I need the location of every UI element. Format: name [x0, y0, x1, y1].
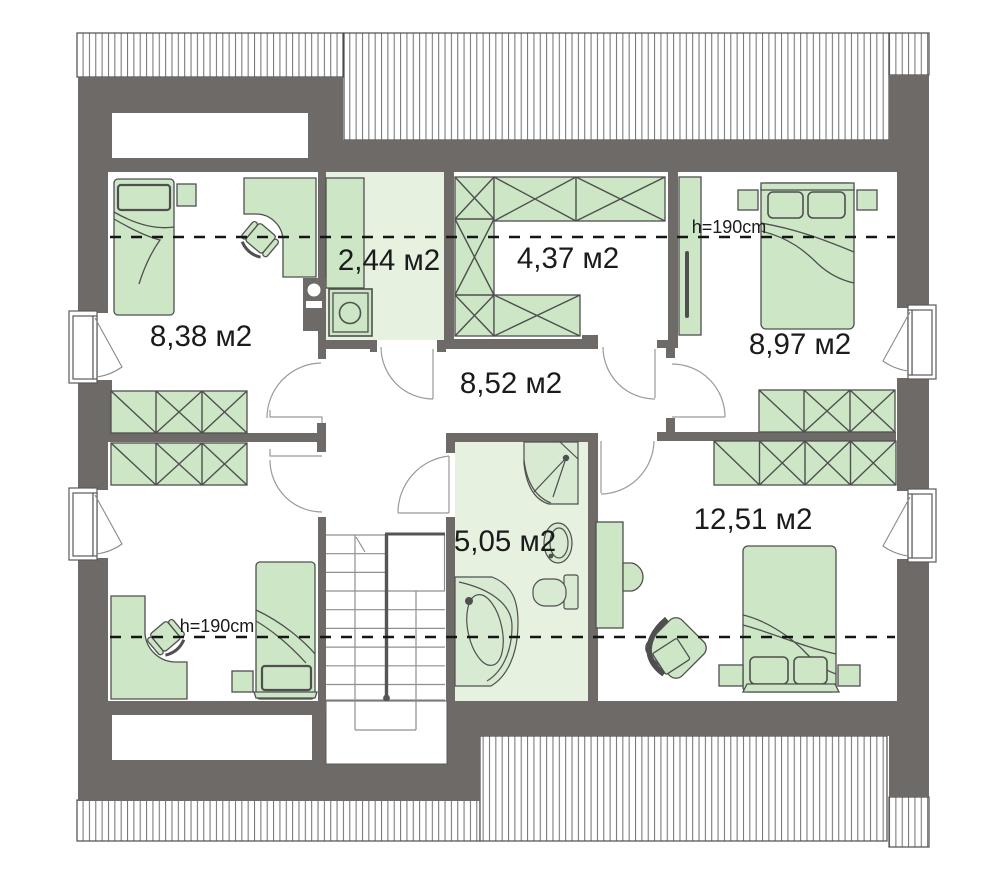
svg-text:8,97 м2: 8,97 м2 — [749, 328, 851, 361]
svg-text:2,44 м2: 2,44 м2 — [338, 244, 440, 277]
svg-text:4,37 м2: 4,37 м2 — [517, 242, 619, 275]
svg-text:8,38 м2: 8,38 м2 — [150, 320, 252, 353]
svg-text:8,52 м2: 8,52 м2 — [460, 367, 562, 400]
svg-text:5,05 м2: 5,05 м2 — [454, 525, 556, 558]
svg-text:h=190cm: h=190cm — [180, 616, 255, 636]
svg-text:h=190cm: h=190cm — [692, 217, 767, 237]
svg-text:12,51 м2: 12,51 м2 — [694, 503, 813, 536]
